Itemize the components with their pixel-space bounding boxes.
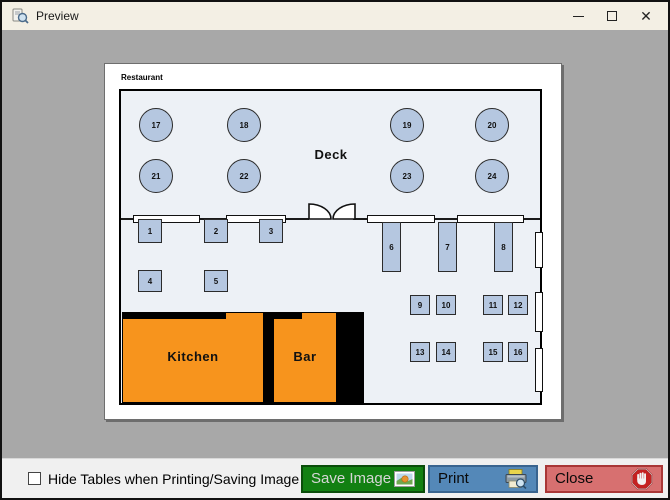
- table-16: 16: [508, 342, 528, 362]
- table-15: 15: [483, 342, 503, 362]
- plan-interior: Deck: [119, 89, 542, 405]
- table-9: 9: [410, 295, 430, 315]
- window-segment: [535, 232, 543, 268]
- footer-toolbar: Hide Tables when Printing/Saving Image S…: [2, 458, 668, 498]
- bar-area-label: Bar: [275, 349, 335, 364]
- print-label: Print: [438, 470, 469, 487]
- hide-tables-checkbox[interactable]: [28, 472, 41, 485]
- window-segment: [535, 292, 543, 332]
- window-title: Preview: [36, 9, 79, 23]
- sheet-label: Restaurant: [121, 73, 163, 82]
- print-button[interactable]: Print: [428, 465, 538, 493]
- close-label: Close: [555, 470, 593, 487]
- preview-app-icon: [12, 8, 29, 24]
- table-17: 17: [139, 108, 173, 142]
- minimize-button[interactable]: [566, 5, 590, 27]
- save-image-label: Save Image: [311, 470, 391, 487]
- table-4: 4: [138, 270, 162, 292]
- minimize-icon: [573, 16, 584, 17]
- table-1: 1: [138, 219, 162, 243]
- preview-canvas: Restaurant Deck: [2, 30, 668, 458]
- window-segment: [457, 215, 524, 223]
- printer-icon: [504, 469, 528, 489]
- hide-tables-option: Hide Tables when Printing/Saving Image: [28, 471, 299, 487]
- double-door-icon: [306, 200, 358, 220]
- table-23: 23: [390, 159, 424, 193]
- close-icon: ✕: [640, 9, 652, 23]
- floorplan-page: Restaurant Deck: [104, 63, 562, 420]
- picture-icon: [394, 471, 415, 487]
- kitchen-top-wall: [122, 312, 226, 319]
- table-18: 18: [227, 108, 261, 142]
- stop-hand-icon: [631, 468, 653, 490]
- bar-right-wall: [336, 312, 364, 403]
- table-14: 14: [436, 342, 456, 362]
- kitchen-area-label: Kitchen: [133, 349, 253, 364]
- table-7: 7: [438, 222, 457, 272]
- table-19: 19: [390, 108, 424, 142]
- table-8: 8: [494, 222, 513, 272]
- preview-window: Preview ✕ Restaurant Deck: [0, 0, 670, 500]
- table-10: 10: [436, 295, 456, 315]
- table-6: 6: [382, 222, 401, 272]
- table-21: 21: [139, 159, 173, 193]
- window-segment: [367, 215, 435, 223]
- titlebar: Preview ✕: [2, 2, 668, 30]
- table-2: 2: [204, 219, 228, 243]
- table-3: 3: [259, 219, 283, 243]
- table-11: 11: [483, 295, 503, 315]
- table-20: 20: [475, 108, 509, 142]
- maximize-button[interactable]: [600, 5, 624, 27]
- close-button[interactable]: Close: [545, 465, 663, 493]
- hide-tables-label: Hide Tables when Printing/Saving Image: [48, 471, 299, 487]
- table-5: 5: [204, 270, 228, 292]
- deck-area-label: Deck: [301, 147, 361, 162]
- table-22: 22: [227, 159, 261, 193]
- save-image-button[interactable]: Save Image: [301, 465, 425, 493]
- window-segment: [535, 348, 543, 392]
- maximize-icon: [607, 11, 617, 21]
- table-24: 24: [475, 159, 509, 193]
- bar-top-wall: [273, 312, 302, 319]
- close-window-button[interactable]: ✕: [634, 5, 658, 27]
- table-12: 12: [508, 295, 528, 315]
- table-13: 13: [410, 342, 430, 362]
